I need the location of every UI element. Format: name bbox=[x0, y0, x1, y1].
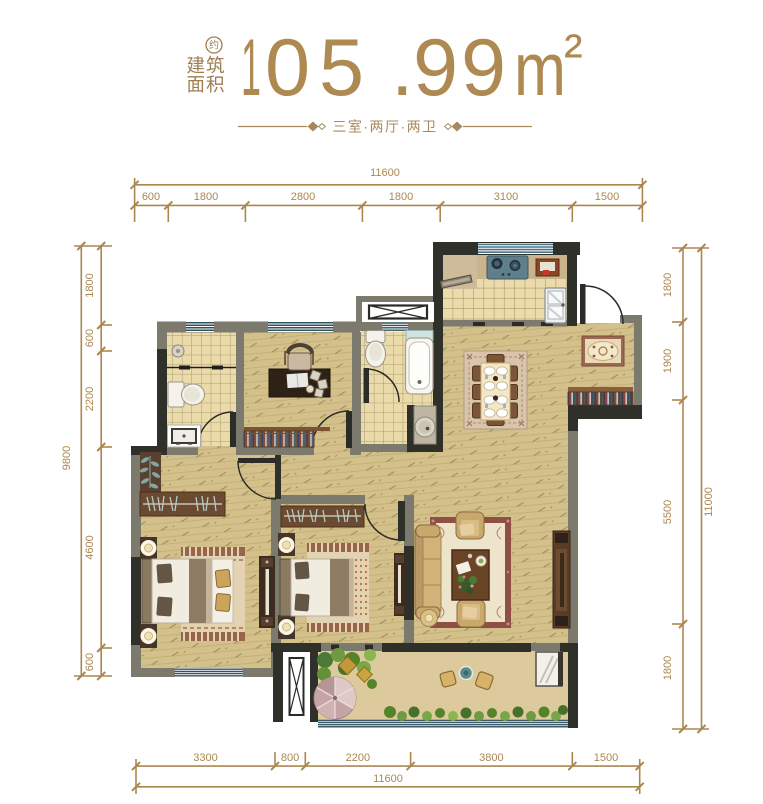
svg-text:1800: 1800 bbox=[662, 656, 674, 680]
svg-text:2200: 2200 bbox=[84, 387, 96, 411]
svg-text:3300: 3300 bbox=[193, 752, 217, 764]
svg-text:600: 600 bbox=[84, 653, 96, 671]
svg-text:11000: 11000 bbox=[703, 487, 715, 517]
svg-text:600: 600 bbox=[142, 191, 160, 203]
svg-text:2200: 2200 bbox=[346, 752, 370, 764]
svg-text:4600: 4600 bbox=[84, 535, 96, 559]
svg-text:600: 600 bbox=[84, 329, 96, 347]
svg-text:1800: 1800 bbox=[662, 273, 674, 297]
svg-text:1900: 1900 bbox=[662, 349, 674, 373]
svg-text:3800: 3800 bbox=[479, 752, 503, 764]
svg-text:1500: 1500 bbox=[594, 752, 618, 764]
svg-text:三室·两厅·两卫: 三室·两厅·两卫 bbox=[332, 119, 437, 135]
svg-text:3100: 3100 bbox=[494, 191, 518, 203]
svg-text:约: 约 bbox=[209, 39, 219, 52]
svg-text:1800: 1800 bbox=[194, 191, 218, 203]
svg-text:1800: 1800 bbox=[389, 191, 413, 203]
svg-text:面积: 面积 bbox=[186, 74, 225, 95]
svg-text:1: 1 bbox=[241, 23, 261, 113]
svg-text:800: 800 bbox=[281, 752, 299, 764]
svg-text:m: m bbox=[514, 27, 566, 111]
svg-text:建筑: 建筑 bbox=[186, 55, 225, 76]
svg-text:11600: 11600 bbox=[370, 167, 400, 179]
svg-text:9800: 9800 bbox=[61, 446, 73, 470]
svg-text:1800: 1800 bbox=[84, 273, 96, 297]
svg-text:11600: 11600 bbox=[373, 773, 403, 785]
svg-text:1500: 1500 bbox=[595, 191, 619, 203]
svg-text:2800: 2800 bbox=[291, 191, 315, 203]
svg-text:²: ² bbox=[564, 22, 583, 85]
svg-text:5500: 5500 bbox=[662, 500, 674, 524]
